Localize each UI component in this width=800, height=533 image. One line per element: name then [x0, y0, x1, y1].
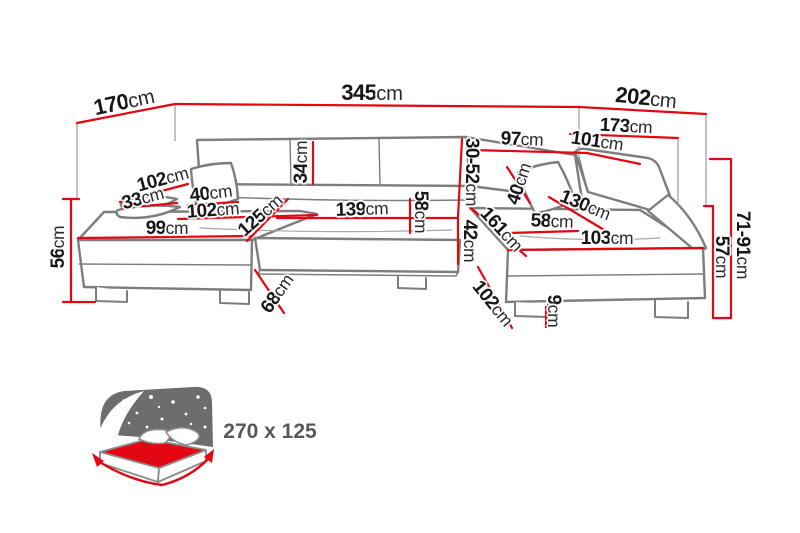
dim-103-label: 103cm [581, 228, 634, 250]
sofa-dimension-diagram: 170cm 345cm 202cm 173cm 97cm 101cm 34cm … [0, 0, 800, 533]
center-foot [398, 276, 426, 289]
right-foot-2 [655, 300, 688, 318]
dim-99-label: 99cm [146, 218, 189, 240]
center-seat-front [255, 238, 460, 272]
bed-icon [92, 387, 214, 485]
dim-42-label: 42cm [458, 220, 480, 263]
dim-9-label: 9cm [542, 295, 564, 328]
bed-size-label: 270 x 125 [223, 420, 316, 444]
dim-102-left-label: 102cm [186, 198, 240, 224]
dim-58-mid-label: 58cm [409, 191, 431, 234]
dim-56-label: 56cm [48, 226, 70, 269]
left-foot [96, 287, 127, 302]
dim-345-label: 345cm [341, 80, 402, 106]
backrest-seam-2 [379, 138, 380, 185]
dim-58-right-label: 58cm [530, 210, 573, 233]
dim-71-91-label: 71-91cm [731, 211, 753, 279]
dim-30-52-label: 30-52cm [460, 138, 482, 206]
dim-34-label: 34cm [291, 141, 313, 184]
dim-97-label: 97cm [500, 128, 543, 151]
dim-139-label: 139cm [335, 198, 388, 222]
left-foot-2 [220, 291, 249, 304]
center-backrest [197, 137, 470, 186]
dim-57-label: 57cm [710, 236, 732, 279]
bed-pillow-right [166, 428, 199, 445]
